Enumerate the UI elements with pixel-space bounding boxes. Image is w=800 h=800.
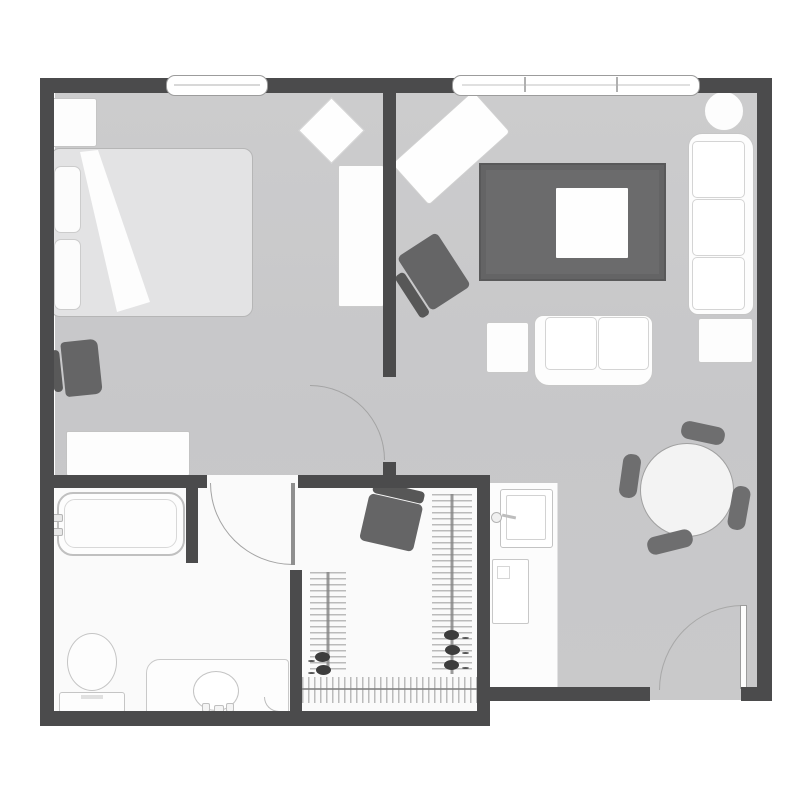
dining-table xyxy=(640,443,734,537)
side-table-left xyxy=(486,322,529,373)
bathroom-door-leaf xyxy=(291,483,295,565)
bed-pillow-bottom xyxy=(54,239,81,310)
side-table-right xyxy=(698,318,753,363)
bedroom-window xyxy=(166,75,268,96)
wall-closet-left xyxy=(290,570,302,711)
coffee-table xyxy=(556,188,628,258)
kitchen-sink xyxy=(500,489,553,548)
bedroom-chair xyxy=(49,339,102,399)
loveseat-cushion-1 xyxy=(545,317,597,370)
floor-plan-canvas xyxy=(0,0,800,800)
nightstand xyxy=(48,98,97,147)
corner-round-table xyxy=(704,91,744,131)
wall-closet-top xyxy=(298,475,484,488)
bedroom-chair-seat xyxy=(60,339,103,398)
bedroom-window-sill xyxy=(174,84,260,86)
kitchen-faucet-knob xyxy=(491,512,502,523)
kitchen-oven xyxy=(492,559,529,624)
sofa-right-cushion-2 xyxy=(692,199,745,256)
dresser xyxy=(66,431,190,476)
wall-left xyxy=(40,78,54,726)
sofa-right xyxy=(688,133,754,315)
entry-door-leaf xyxy=(740,605,747,689)
living-window-divider-1 xyxy=(524,77,526,92)
wall-bathroom-top xyxy=(40,475,207,488)
living-window-sill xyxy=(462,84,690,86)
loveseat-cushion-2 xyxy=(598,317,649,370)
toilet-flush-detail xyxy=(81,695,103,699)
sofa-right-cushion-1 xyxy=(692,141,745,198)
toilet xyxy=(59,633,127,713)
living-window-divider-2 xyxy=(616,77,618,92)
bedroom-desk xyxy=(338,165,384,307)
bathtub-inner xyxy=(64,499,177,548)
closet-rod-bottom xyxy=(302,677,478,703)
wall-bottom-left xyxy=(40,711,490,726)
wall-right xyxy=(757,78,772,701)
bathtub xyxy=(57,492,185,556)
wall-tub-stub xyxy=(186,475,198,563)
closet-shoes-right xyxy=(444,630,459,640)
wall-bottom-right-a xyxy=(483,687,650,701)
bed-pillow-top xyxy=(54,166,81,233)
living-window xyxy=(452,75,700,96)
closet-rod-right xyxy=(432,494,472,674)
wall-bedroom-living-divider xyxy=(383,78,396,377)
sofa-right-cushion-3 xyxy=(692,257,745,310)
loveseat xyxy=(534,315,653,386)
kitchen-oven-panel xyxy=(497,566,510,579)
toilet-bowl xyxy=(67,633,117,691)
vanity xyxy=(146,659,289,715)
closet-shoes-left xyxy=(315,652,330,662)
